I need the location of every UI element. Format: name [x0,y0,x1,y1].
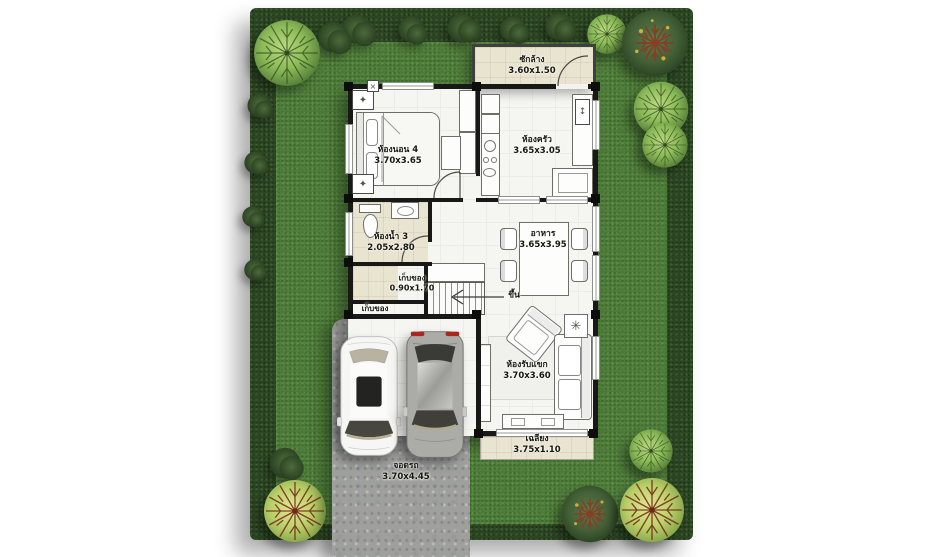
column-post [344,258,353,267]
stairs-direction-label: ขึ้น [508,290,520,301]
plant-icon: ✳ [564,314,588,338]
room-label-storage-under-stairs: เก็บของ [362,304,389,314]
desk [441,136,461,170]
room-name: ห้องนอน 4 [378,145,418,155]
room-label-parking: จอดรถ 3.70x4.45 [382,461,429,483]
column-post [591,310,600,319]
stairs-up-text: ขึ้น [508,290,520,300]
room-label-dining: อาหาร 3.65x3.95 [519,229,566,251]
dining-chair-icon [571,228,588,250]
lamp-glyph: ✦ [359,179,367,190]
closet [459,90,476,132]
sofa-cushion [558,379,581,410]
tree-yellow-green-icon [262,478,328,544]
kitchen-counter-corner [552,168,593,198]
room-name: ห้องครัว [522,135,552,145]
room-name: ห้องรับแขก [506,360,547,370]
room-dims: 3.70x4.45 [382,472,429,482]
room-dims: 3.60x1.50 [508,66,555,76]
room-label-bedroom4: ห้องนอน 4 3.70x3.65 [374,145,421,167]
fridge-icon [481,94,500,114]
stove-burner-icon [483,157,489,163]
room-label-kitchen: ห้องครัว 3.65x3.05 [513,135,560,157]
closet [459,132,476,174]
updown-glyph: ↕ [579,107,587,117]
room-label-storage: เก็บของ 0.90x1.70 [390,274,435,295]
lamp-glyph: ✦ [359,95,367,106]
column-post [591,194,600,203]
wall-segment [348,198,463,202]
counter-appliance-icon: ↕ [575,99,590,125]
room-label-bathroom3: ห้องน้ำ 3 2.05x2.80 [367,232,414,254]
wall-segment [476,314,481,436]
room-dims: 3.70x3.60 [503,371,550,381]
stove-burner-icon [491,157,497,163]
porch-post [589,429,598,438]
kitchen-sink-icon [484,140,496,152]
hedge-bush-icon [396,14,430,48]
column-post [344,310,353,319]
sofa-icon [554,334,592,420]
door-opening [556,84,588,89]
stove-oval-icon [483,168,496,177]
room-label-porch: เฉลียง 3.75x1.10 [513,434,560,456]
bedside-lamp-icon: ✦ [352,90,374,110]
sofa-back [581,336,590,418]
room-name: เก็บของ [362,304,389,313]
stairs-landing [427,263,485,282]
window [498,196,540,204]
room-dims: 0.90x1.70 [390,284,435,293]
wall-segment [348,262,432,266]
window [345,212,353,256]
wall-segment [428,200,432,242]
room-dims: 3.65x3.05 [513,146,560,156]
window [592,100,600,150]
dining-chair-icon [500,260,517,282]
bedside-lamp-icon: ✦ [352,174,374,194]
room-name: ซักล้าง [519,55,544,65]
room-name: ห้องน้ำ 3 [374,232,408,242]
bathroom-sink-icon [391,202,419,219]
dining-chair-icon [571,260,588,282]
tree-yellow-green-icon [618,476,686,544]
hedge-bush-icon [243,258,269,284]
ceiling-vent-icon: × [367,80,379,92]
window [345,124,353,174]
room-label-living: ห้องรับแขก 3.70x3.60 [503,360,550,382]
column-post [472,82,481,91]
toilet-icon [359,204,381,213]
plant-glyph: ✳ [571,319,582,334]
tv-cabinet [502,414,564,429]
room-name: เก็บของ [399,274,426,283]
wall-segment [476,84,480,176]
hedge-bush-icon [246,92,276,122]
dining-chair-icon [500,228,517,250]
tree-light-green-icon [252,18,322,88]
white-car [337,334,401,458]
tree-light-green-icon [628,428,674,474]
hedge-bush-icon [241,205,267,231]
room-dims: 3.65x3.95 [519,240,566,250]
room-name: อาหาร [531,229,556,239]
window [546,196,588,204]
fridge-icon [481,114,500,134]
gray-car [403,329,467,460]
porch-post [474,429,483,438]
tree-light-green-icon [641,121,689,169]
wall-segment [348,314,481,319]
column-post [472,310,481,319]
room-dims: 2.05x2.80 [367,243,414,253]
floor-plan-canvas: ✦ ✦ × ↕ ✳ [0,0,940,557]
hedge-bush-icon [543,10,579,46]
sofa-cushion [558,345,581,376]
window [592,336,600,380]
room-name: จอดรถ [393,461,418,471]
tree-dark-red-branches-icon [560,484,620,544]
room-name: เฉลียง [525,434,548,444]
room-label-laundry: ซักล้าง 3.60x1.50 [508,55,555,77]
column-post [591,82,600,91]
hedge-bush-icon [446,10,484,48]
vent-glyph: × [370,82,377,91]
column-post [344,194,353,203]
window [592,206,600,252]
window [592,255,600,301]
room-dims: 3.70x3.65 [374,156,421,166]
window [382,82,434,90]
room-dims: 3.75x1.10 [513,445,560,455]
hedge-bush-icon [498,14,532,48]
tree-dark-red-branches-icon [620,8,690,78]
hedge-bush-icon [243,150,271,178]
